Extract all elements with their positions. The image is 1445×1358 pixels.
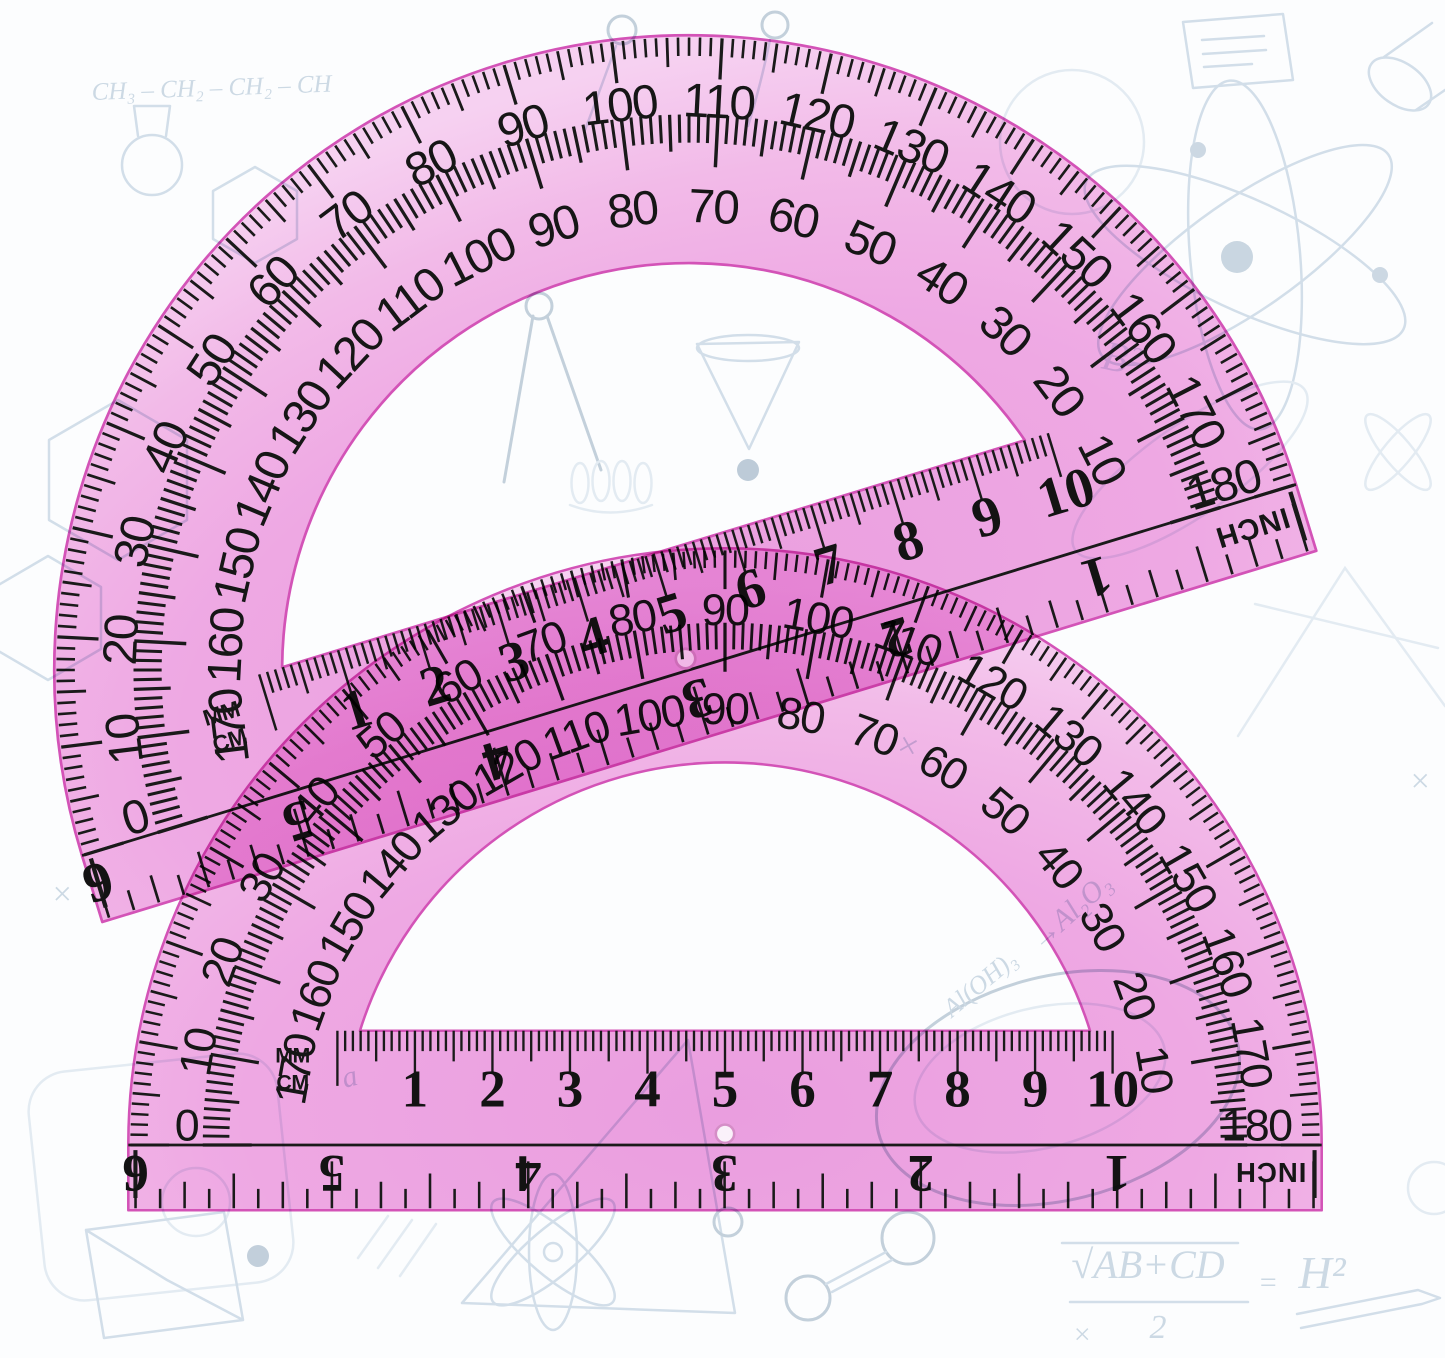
inch-unit-label: INCH (1235, 1157, 1306, 1188)
cm-number-label: 10 (1086, 1060, 1139, 1118)
ink-blob-doodle (737, 459, 759, 481)
x-mark-doodle: × (1072, 1318, 1092, 1351)
atom-electron-icon (1190, 142, 1206, 158)
inner-degree-label: 160 (198, 607, 255, 685)
atom-electron-icon (1372, 267, 1388, 283)
outer-degree-label: 90 (702, 584, 749, 635)
outer-degree-label: 10 (169, 1024, 227, 1080)
product-photo: CH₃ – CH₂ – CH₂ – CH B² →Al₂O₃ Al(OH)₃ √… (0, 0, 1445, 1358)
outer-degree-label: 100 (579, 75, 660, 137)
cm-number-label: 8 (944, 1060, 971, 1118)
outer-degree-label: 10 (95, 711, 154, 767)
cm-number-label: 6 (789, 1060, 816, 1118)
inner-degree-label: 70 (687, 180, 740, 236)
inch-number-label: 1 (1104, 1144, 1131, 1202)
fraction-denominator-doodle: 2 (1150, 1309, 1167, 1346)
outer-degree-label: 110 (682, 74, 756, 131)
inner-degree-label: 80 (773, 686, 829, 744)
center-hole (716, 1125, 734, 1143)
inner-degree-label: 90 (702, 683, 749, 734)
cm-number-label: 1 (402, 1060, 429, 1118)
inch-number-label: 3 (711, 1144, 738, 1202)
cm-number-label: 7 (867, 1060, 894, 1118)
cm-unit-label: CM (276, 1070, 308, 1094)
outer-degree-label: 20 (94, 614, 150, 667)
inch-number-label: 2 (908, 1144, 935, 1202)
ink-blob-doodle (247, 1245, 269, 1267)
mm-unit-label: MM (275, 1044, 310, 1068)
inner-degree-label: 80 (605, 181, 661, 240)
inch-number-label: 5 (319, 1144, 346, 1202)
cm-number-label: 3 (557, 1060, 584, 1118)
baseline-180-label: 180 (1221, 1099, 1292, 1150)
cm-number-label: 9 (1022, 1060, 1049, 1118)
baseline-zero-label: 0 (175, 1099, 199, 1150)
cm-number-label: 2 (479, 1060, 506, 1118)
inch-number-label: 6 (122, 1144, 149, 1202)
cm-number-label: 5 (712, 1060, 739, 1118)
x-mark-doodle: × (51, 876, 74, 913)
outer-degree-label: 80 (605, 589, 661, 647)
scene-svg: CH₃ – CH₂ – CH₂ – CH B² →Al₂O₃ Al(OH)₃ √… (0, 0, 1445, 1358)
equals-doodle: = (1258, 1266, 1278, 1299)
atom-nucleus-icon (1221, 241, 1253, 273)
h-squared-doodle: H² (1297, 1247, 1346, 1298)
sqrt-formula-doodle: √AB+CD (1071, 1242, 1224, 1287)
inch-number-label: 4 (515, 1144, 542, 1202)
cm-number-label: 4 (634, 1060, 661, 1118)
x-mark-doodle: × (1409, 763, 1432, 800)
